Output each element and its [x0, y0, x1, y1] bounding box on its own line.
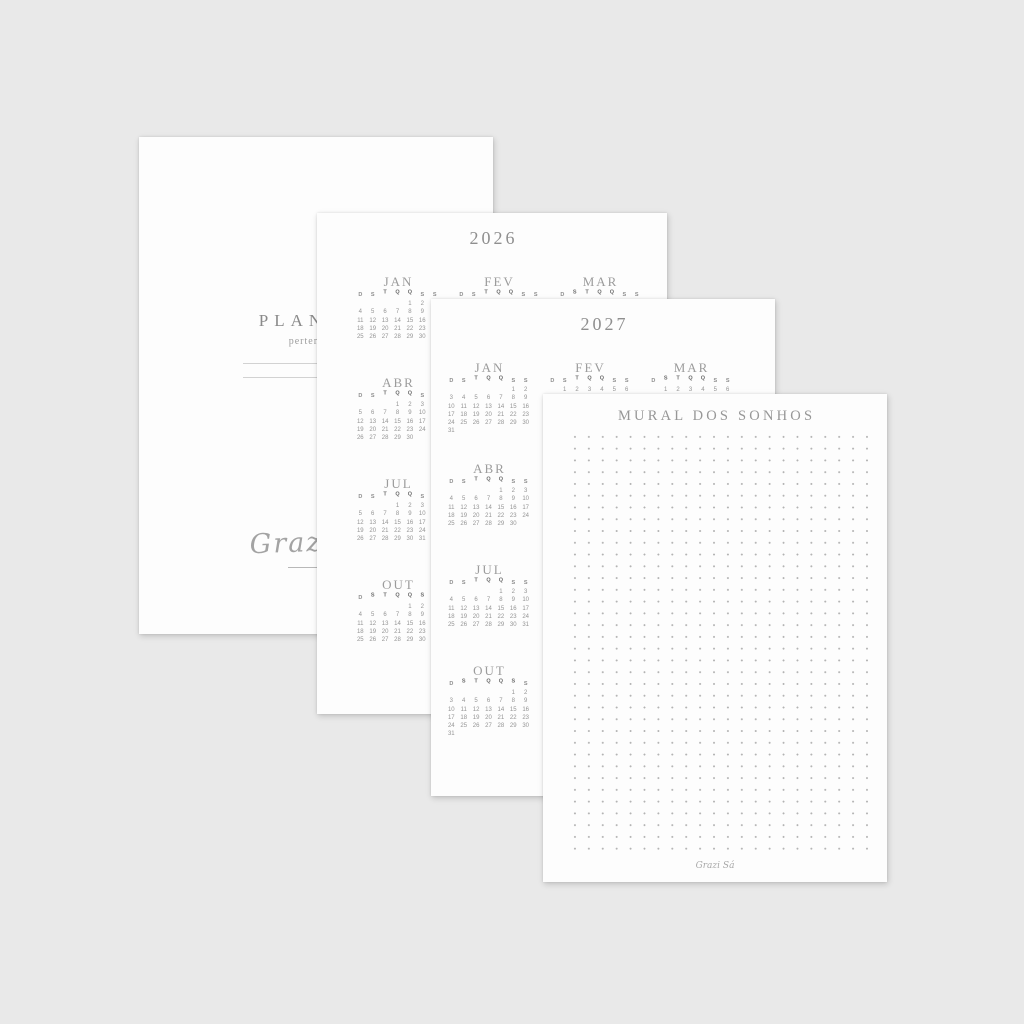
- date-cell: 25: [354, 333, 366, 341]
- date-cell: 26: [354, 434, 366, 442]
- date-cell: 19: [367, 325, 379, 333]
- date-cell: [445, 487, 457, 495]
- date-cell: 9: [519, 394, 531, 402]
- date-cell: 28: [495, 419, 507, 427]
- weekday-letter: S: [367, 392, 379, 401]
- date-cell: 19: [470, 714, 482, 722]
- date-cell: 8: [404, 308, 416, 316]
- date-cell: 13: [379, 317, 391, 325]
- weekday-letter: D: [354, 594, 366, 603]
- month-title: JAN: [443, 361, 535, 374]
- date-cell: 5: [354, 409, 366, 417]
- date-cell: 22: [391, 527, 403, 535]
- date-cell: 18: [445, 613, 457, 621]
- mini-calendar-jul-2026: JULDSTQQSS123456789101112131415161718192…: [352, 477, 444, 543]
- date-cell: 12: [458, 605, 470, 613]
- date-cell: 14: [482, 605, 494, 613]
- date-cell: 15: [507, 706, 519, 714]
- date-cell: 2: [416, 603, 428, 611]
- date-cell: 8: [495, 495, 507, 503]
- date-cell: 7: [482, 495, 494, 503]
- weekday-letter: S: [367, 592, 379, 601]
- month-title: FEV: [453, 275, 545, 288]
- date-cell: 21: [482, 512, 494, 520]
- date-cell: 2: [404, 401, 416, 409]
- dot-grid: [568, 431, 874, 855]
- date-cell: 22: [507, 714, 519, 722]
- date-cell: 20: [367, 426, 379, 434]
- weekday-letter: Q: [404, 592, 416, 601]
- date-cell: 5: [470, 697, 482, 705]
- date-cell: 8: [391, 510, 403, 518]
- date-cell: 9: [404, 510, 416, 518]
- date-cell: 4: [458, 697, 470, 705]
- date-cell: [495, 427, 507, 435]
- date-cell: 27: [367, 434, 379, 442]
- date-cell: 24: [416, 527, 428, 535]
- weekday-letter: Q: [583, 375, 595, 384]
- date-cell: [354, 603, 366, 611]
- mini-calendar-out-2026: OUTDSTQQSS123456789101112131415161718192…: [352, 578, 444, 644]
- month-grid: DSTQQSS123456789101112131415161718192021…: [443, 377, 535, 436]
- date-cell: [354, 300, 366, 308]
- weekday-letter: Q: [391, 289, 403, 298]
- date-cell: 18: [458, 411, 470, 419]
- date-cell: 22: [495, 613, 507, 621]
- date-cell: 17: [416, 519, 428, 527]
- date-cell: 4: [445, 596, 457, 604]
- weekday-letter: Q: [482, 375, 494, 384]
- date-cell: 30: [416, 636, 428, 644]
- date-cell: 20: [470, 613, 482, 621]
- date-cell: [379, 603, 391, 611]
- weekday-letter: T: [470, 375, 482, 384]
- weekday-letter: Q: [391, 491, 403, 500]
- date-cell: 13: [482, 403, 494, 411]
- date-cell: 16: [416, 620, 428, 628]
- date-cell: 22: [507, 411, 519, 419]
- date-cell: 18: [445, 512, 457, 520]
- date-cell: 8: [507, 697, 519, 705]
- weekday-letter: T: [581, 289, 593, 298]
- weekday-letter: S: [660, 375, 672, 384]
- date-cell: 8: [391, 409, 403, 417]
- weekday-letter: S: [709, 377, 721, 386]
- weekday-letter: D: [445, 680, 457, 689]
- date-cell: 11: [445, 605, 457, 613]
- weekday-letter: T: [379, 390, 391, 399]
- mini-calendar-jan-2026: JANDSTQQSS123456789101112131415161718192…: [352, 275, 444, 341]
- month-grid: DSTQQSS123456789101112131415161718192021…: [443, 680, 535, 739]
- date-cell: 1: [404, 603, 416, 611]
- date-cell: 23: [404, 426, 416, 434]
- date-cell: 31: [445, 427, 457, 435]
- date-cell: [519, 520, 531, 528]
- date-cell: 1: [391, 502, 403, 510]
- date-cell: 3: [519, 588, 531, 596]
- date-cell: 10: [416, 510, 428, 518]
- date-cell: [367, 300, 379, 308]
- date-cell: 7: [379, 510, 391, 518]
- date-cell: 1: [507, 689, 519, 697]
- weekday-letter: S: [458, 478, 470, 487]
- weekday-letter: Q: [404, 289, 416, 298]
- date-cell: 13: [379, 620, 391, 628]
- date-cell: 1: [391, 401, 403, 409]
- date-cell: 9: [507, 596, 519, 604]
- date-cell: 24: [445, 419, 457, 427]
- weekday-letter: Q: [596, 375, 608, 384]
- date-cell: 27: [482, 419, 494, 427]
- date-cell: 21: [391, 628, 403, 636]
- date-cell: 5: [458, 495, 470, 503]
- date-cell: 2: [507, 588, 519, 596]
- date-cell: 18: [458, 714, 470, 722]
- date-cell: 8: [404, 611, 416, 619]
- date-cell: 10: [519, 495, 531, 503]
- date-cell: 1: [495, 588, 507, 596]
- weekday-letter: T: [480, 289, 492, 298]
- weekday-letter: T: [672, 375, 684, 384]
- date-cell: 12: [354, 418, 366, 426]
- date-cell: 2: [416, 300, 428, 308]
- date-cell: 26: [458, 520, 470, 528]
- date-cell: 2: [404, 502, 416, 510]
- date-cell: 24: [416, 426, 428, 434]
- date-cell: [470, 689, 482, 697]
- date-cell: [495, 386, 507, 394]
- weekday-letter: S: [458, 377, 470, 386]
- date-cell: [495, 689, 507, 697]
- weekday-letter: S: [416, 392, 428, 401]
- weekday-letter: S: [458, 579, 470, 588]
- date-cell: 27: [482, 722, 494, 730]
- date-cell: 21: [391, 325, 403, 333]
- weekday-letter: S: [620, 377, 632, 386]
- weekday-letter: T: [470, 476, 482, 485]
- weekday-letter: S: [519, 377, 531, 386]
- year-title: 2026: [317, 228, 667, 249]
- weekday-letter: Q: [495, 375, 507, 384]
- month-title: ABR: [443, 462, 535, 475]
- date-cell: 10: [445, 706, 457, 714]
- weekday-letter: S: [416, 592, 428, 601]
- date-cell: 3: [519, 487, 531, 495]
- date-cell: 28: [482, 520, 494, 528]
- date-cell: [482, 386, 494, 394]
- date-cell: [458, 487, 470, 495]
- date-cell: 17: [445, 411, 457, 419]
- date-cell: 22: [495, 512, 507, 520]
- month-grid: DSTQQSS123456789101112131415161718192021…: [352, 493, 444, 543]
- date-cell: [519, 730, 531, 738]
- date-cell: [367, 603, 379, 611]
- mini-calendar-out-2027: OUTDSTQQSS123456789101112131415161718192…: [443, 664, 535, 739]
- month-title: OUT: [352, 578, 444, 591]
- weekday-letter: Q: [482, 678, 494, 687]
- weekday-letter: S: [559, 377, 571, 386]
- date-cell: 21: [379, 527, 391, 535]
- weekday-letter: S: [519, 579, 531, 588]
- date-cell: 17: [445, 714, 457, 722]
- weekday-letter: S: [519, 478, 531, 487]
- weekday-letter: D: [354, 392, 366, 401]
- date-cell: 25: [354, 636, 366, 644]
- date-cell: 7: [495, 394, 507, 402]
- date-cell: 24: [519, 613, 531, 621]
- date-cell: 5: [458, 596, 470, 604]
- date-cell: 20: [379, 628, 391, 636]
- date-cell: 4: [354, 611, 366, 619]
- date-cell: 30: [519, 722, 531, 730]
- date-cell: [482, 730, 494, 738]
- date-cell: 11: [445, 504, 457, 512]
- date-cell: 6: [367, 510, 379, 518]
- date-cell: 13: [367, 519, 379, 527]
- date-cell: 16: [404, 418, 416, 426]
- date-cell: 12: [458, 504, 470, 512]
- date-cell: 19: [367, 628, 379, 636]
- date-cell: 7: [379, 409, 391, 417]
- date-cell: 29: [507, 419, 519, 427]
- date-cell: 14: [379, 418, 391, 426]
- date-cell: 20: [367, 527, 379, 535]
- date-cell: 26: [367, 636, 379, 644]
- date-cell: [416, 434, 428, 442]
- weekday-letter: T: [470, 678, 482, 687]
- date-cell: 16: [416, 317, 428, 325]
- weekday-letter: Q: [404, 390, 416, 399]
- date-cell: [519, 427, 531, 435]
- weekday-letter: S: [507, 579, 519, 588]
- date-cell: 8: [495, 596, 507, 604]
- date-cell: 18: [354, 628, 366, 636]
- date-cell: 19: [470, 411, 482, 419]
- date-cell: 9: [416, 308, 428, 316]
- date-cell: 7: [391, 308, 403, 316]
- month-title: OUT: [443, 664, 535, 677]
- mural-page: MURAL DOS SONHOS Grazi Sá: [543, 394, 887, 882]
- date-cell: 16: [519, 403, 531, 411]
- date-cell: 13: [367, 418, 379, 426]
- date-cell: 14: [495, 706, 507, 714]
- date-cell: 26: [367, 333, 379, 341]
- date-cell: 19: [458, 613, 470, 621]
- weekday-letter: Q: [391, 592, 403, 601]
- date-cell: 10: [519, 596, 531, 604]
- date-cell: 29: [495, 621, 507, 629]
- weekday-letter: D: [445, 478, 457, 487]
- date-cell: 13: [482, 706, 494, 714]
- date-cell: 15: [404, 317, 416, 325]
- date-cell: 15: [391, 418, 403, 426]
- date-cell: 30: [507, 520, 519, 528]
- date-cell: 5: [367, 308, 379, 316]
- weekday-letter: S: [367, 291, 379, 300]
- month-title: JAN: [352, 275, 444, 288]
- date-cell: 19: [458, 512, 470, 520]
- weekday-letter: D: [445, 377, 457, 386]
- date-cell: 22: [404, 325, 416, 333]
- date-cell: 9: [507, 495, 519, 503]
- date-cell: [391, 300, 403, 308]
- weekday-letter: S: [507, 377, 519, 386]
- date-cell: 18: [354, 325, 366, 333]
- date-cell: 23: [519, 714, 531, 722]
- date-cell: 20: [482, 714, 494, 722]
- date-cell: 15: [507, 403, 519, 411]
- weekday-letter: S: [367, 493, 379, 502]
- date-cell: 11: [354, 317, 366, 325]
- date-cell: 21: [495, 714, 507, 722]
- weekday-letter: Q: [391, 390, 403, 399]
- date-cell: 3: [445, 394, 457, 402]
- date-cell: 2: [519, 386, 531, 394]
- weekday-letter: S: [608, 377, 620, 386]
- date-cell: 12: [470, 706, 482, 714]
- date-cell: 20: [379, 325, 391, 333]
- date-cell: 16: [404, 519, 416, 527]
- date-cell: 29: [404, 636, 416, 644]
- date-cell: 14: [391, 620, 403, 628]
- date-cell: 6: [379, 611, 391, 619]
- date-cell: 17: [519, 504, 531, 512]
- date-cell: 16: [519, 706, 531, 714]
- date-cell: [482, 588, 494, 596]
- date-cell: 7: [482, 596, 494, 604]
- date-cell: 3: [416, 502, 428, 510]
- date-cell: 15: [495, 605, 507, 613]
- date-cell: [445, 386, 457, 394]
- date-cell: 3: [445, 697, 457, 705]
- date-cell: 15: [404, 620, 416, 628]
- date-cell: 4: [458, 394, 470, 402]
- date-cell: 26: [470, 722, 482, 730]
- weekday-letter: T: [571, 375, 583, 384]
- date-cell: 12: [367, 620, 379, 628]
- date-cell: [482, 427, 494, 435]
- weekday-letter: S: [519, 680, 531, 689]
- date-cell: 14: [482, 504, 494, 512]
- date-cell: [482, 689, 494, 697]
- date-cell: 27: [379, 636, 391, 644]
- date-cell: 21: [379, 426, 391, 434]
- date-cell: 26: [354, 535, 366, 543]
- date-cell: 14: [379, 519, 391, 527]
- date-cell: 28: [482, 621, 494, 629]
- month-title: FEV: [544, 361, 636, 374]
- date-cell: 1: [495, 487, 507, 495]
- date-cell: 25: [458, 722, 470, 730]
- date-cell: 13: [470, 605, 482, 613]
- weekday-letter: D: [546, 377, 558, 386]
- date-cell: 9: [519, 697, 531, 705]
- date-cell: 9: [404, 409, 416, 417]
- date-cell: [391, 603, 403, 611]
- weekday-letter: Q: [482, 577, 494, 586]
- date-cell: 27: [470, 520, 482, 528]
- date-cell: 11: [458, 706, 470, 714]
- date-cell: [367, 502, 379, 510]
- weekday-letter: Q: [606, 289, 618, 298]
- weekday-letter: S: [569, 289, 581, 298]
- date-cell: 30: [404, 535, 416, 543]
- date-cell: [470, 588, 482, 596]
- weekday-letter: Q: [684, 375, 696, 384]
- date-cell: 5: [354, 510, 366, 518]
- date-cell: 21: [495, 411, 507, 419]
- weekday-letter: S: [458, 678, 470, 687]
- weekday-letter: Q: [482, 476, 494, 485]
- date-cell: 7: [495, 697, 507, 705]
- date-cell: 29: [507, 722, 519, 730]
- brand-signature: Grazi Sá: [543, 861, 887, 871]
- date-cell: 2: [507, 487, 519, 495]
- date-cell: [470, 386, 482, 394]
- date-cell: 29: [391, 535, 403, 543]
- date-cell: 20: [482, 411, 494, 419]
- month-grid: DSTQQSS123456789101112131415161718192021…: [352, 594, 444, 644]
- date-cell: 8: [507, 394, 519, 402]
- date-cell: 30: [507, 621, 519, 629]
- mural-title: MURAL DOS SONHOS: [543, 408, 887, 425]
- month-grid: DSTQQSS123456789101112131415161718192021…: [352, 291, 444, 341]
- date-cell: 1: [404, 300, 416, 308]
- date-cell: [458, 689, 470, 697]
- date-cell: 23: [519, 411, 531, 419]
- date-cell: 21: [482, 613, 494, 621]
- month-title: MAR: [554, 275, 646, 288]
- month-title: MAR: [645, 361, 737, 374]
- date-cell: [470, 427, 482, 435]
- date-cell: [379, 502, 391, 510]
- date-cell: 22: [404, 628, 416, 636]
- date-cell: 26: [458, 621, 470, 629]
- date-cell: 30: [416, 333, 428, 341]
- date-cell: [354, 502, 366, 510]
- date-cell: 29: [404, 333, 416, 341]
- month-grid: DSTQQSS123456789101112131415161718192021…: [443, 579, 535, 629]
- date-cell: 9: [416, 611, 428, 619]
- date-cell: 7: [391, 611, 403, 619]
- weekday-letter: D: [354, 493, 366, 502]
- date-cell: [458, 427, 470, 435]
- weekday-letter: S: [721, 377, 733, 386]
- weekday-letter: Q: [495, 678, 507, 687]
- date-cell: 28: [391, 333, 403, 341]
- date-cell: 27: [470, 621, 482, 629]
- date-cell: [482, 487, 494, 495]
- date-cell: 15: [495, 504, 507, 512]
- date-cell: 23: [507, 613, 519, 621]
- date-cell: [379, 401, 391, 409]
- month-grid: DSTQQSS123456789101112131415161718192021…: [443, 478, 535, 528]
- weekday-letter: Q: [492, 289, 504, 298]
- date-cell: 5: [470, 394, 482, 402]
- date-cell: 6: [482, 697, 494, 705]
- date-cell: 5: [367, 611, 379, 619]
- month-title: JUL: [352, 477, 444, 490]
- date-cell: 19: [354, 527, 366, 535]
- date-cell: 12: [354, 519, 366, 527]
- weekday-letter: Q: [495, 476, 507, 485]
- date-cell: 27: [367, 535, 379, 543]
- date-cell: 30: [404, 434, 416, 442]
- date-cell: 12: [470, 403, 482, 411]
- weekday-letter: T: [379, 491, 391, 500]
- date-cell: [458, 386, 470, 394]
- date-cell: [367, 401, 379, 409]
